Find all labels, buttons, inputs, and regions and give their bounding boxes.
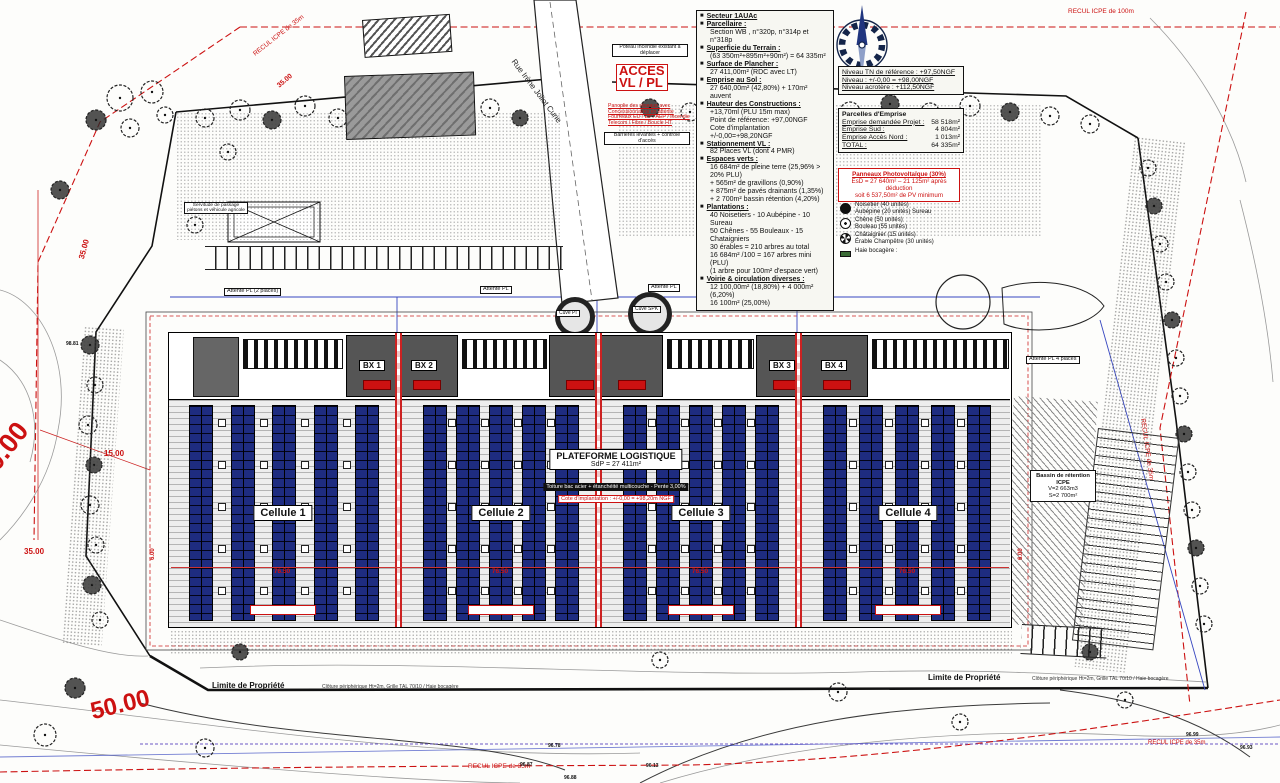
text-label: RECUL ICPE de 100m bbox=[1068, 8, 1134, 15]
smoke-vent bbox=[957, 461, 965, 469]
title-block-legend: ■Secteur 1AUAc■Parcellaire :Section WB ,… bbox=[696, 10, 834, 311]
legend-item-title: Emprise au Sol : bbox=[707, 77, 762, 85]
smoke-vent bbox=[957, 419, 965, 427]
smoke-vent bbox=[714, 545, 722, 553]
plant-name: Haie bocagère : bbox=[855, 248, 897, 255]
platform-title: PLATEFORME LOGISTIQUE bbox=[556, 451, 675, 461]
loading-docks bbox=[872, 339, 1009, 369]
hazel-tree-icon bbox=[840, 203, 851, 214]
plant-names: Châtaignier (15 unités)Érable Champêtre … bbox=[855, 232, 934, 245]
plant-names: Chêne (50 unités)Bouleau (55 unités) bbox=[855, 217, 907, 230]
smoke-vent bbox=[681, 587, 689, 595]
dimension-label: 76.50 bbox=[492, 568, 508, 575]
smoke-vent bbox=[747, 587, 755, 595]
existing-building bbox=[362, 14, 452, 58]
access-line2: VL / PL bbox=[619, 77, 665, 89]
tree-icon bbox=[107, 85, 133, 111]
smoke-vent bbox=[921, 419, 929, 427]
legend-item-header: ■Voirie & circulation diverses : bbox=[700, 276, 830, 284]
level-line: Niveau acrotère : +112,50NGF bbox=[842, 84, 960, 92]
plant-legend-row: Châtaignier (15 unités)Érable Champêtre … bbox=[840, 232, 980, 245]
legend-item: ■Superficie du Terrain :(63 350m²+895m²+… bbox=[700, 45, 830, 61]
square-bullet-icon: ■ bbox=[700, 61, 704, 69]
solar-panel-array bbox=[623, 405, 647, 621]
tree-icon bbox=[65, 678, 85, 698]
cell-label: Cellule 3 bbox=[671, 505, 730, 521]
square-bullet-icon: ■ bbox=[700, 141, 704, 149]
tree-icon bbox=[51, 181, 69, 199]
legend-item-line: 82 Places VL (dont 4 PMR) bbox=[700, 148, 830, 156]
hedge-icon bbox=[840, 251, 851, 257]
smoke-vent bbox=[343, 461, 351, 469]
tree-icon bbox=[1172, 388, 1188, 404]
pv-line: Panneaux Photovoltaïque (30%) bbox=[842, 171, 956, 178]
pv-note-box: Panneaux Photovoltaïque (30%) EsD = 27 6… bbox=[838, 168, 960, 202]
legend-item-title: Secteur 1AUAc bbox=[707, 13, 758, 21]
legend-item: ■Hauteur des Constructions :+13,70ml (PL… bbox=[700, 101, 830, 141]
basin-line: Bassin de rétention ICPE bbox=[1034, 473, 1092, 486]
dimension-label: 76.50 bbox=[274, 568, 290, 575]
emprise-title: Parcelles d'Emprise bbox=[842, 111, 960, 119]
basin-label-box: Bassin de rétention ICPE V=2 663m3 S=2 7… bbox=[1030, 470, 1096, 502]
smoke-vent bbox=[681, 419, 689, 427]
smoke-vent bbox=[648, 545, 656, 553]
legend-item-line: (1 arbre pour 100m² d'espace vert) bbox=[700, 268, 830, 276]
solar-panel-array bbox=[314, 405, 338, 621]
smoke-vent bbox=[957, 587, 965, 595]
legend-item-line: 40 Noisetiers - 10 Aubépine - 10 Sureau bbox=[700, 212, 830, 228]
emprise-row-value: 58 518m² bbox=[931, 119, 960, 127]
fire-wall-separator bbox=[395, 333, 402, 627]
cell-south-note-box bbox=[468, 605, 534, 615]
office-bx-label: BX 3 bbox=[769, 360, 795, 371]
smoke-vent bbox=[481, 461, 489, 469]
legend-item-header: ■Parcellaire : bbox=[700, 21, 830, 29]
dimension-label: 6.00 bbox=[150, 548, 156, 560]
text-label: RECUL ICPE de 35m bbox=[1148, 740, 1205, 746]
cell-label: Cellule 1 bbox=[253, 505, 312, 521]
legend-item-header: ■Superficie du Terrain : bbox=[700, 45, 830, 53]
smoke-vent bbox=[260, 461, 268, 469]
smoke-vent bbox=[481, 587, 489, 595]
existing-building bbox=[344, 71, 476, 139]
smoke-vent bbox=[481, 545, 489, 553]
emprise-row-label: Emprise demandée Projet : bbox=[842, 119, 924, 127]
spot-elevation: 96.87 bbox=[520, 763, 533, 768]
legend-item: ■Surface de Plancher :27 411,00m² (RDC a… bbox=[700, 61, 830, 77]
site-plan-canvas: BX 1BX 2BX 3BX 4Cellule 1Cellule 2Cellul… bbox=[0, 0, 1280, 783]
recul-icpe-35-line-south bbox=[0, 700, 1280, 772]
cell-south-note-box bbox=[250, 605, 316, 615]
cell-south-note-box bbox=[668, 605, 734, 615]
legend-item: ■Espaces verts :16 684m² de pleine terre… bbox=[700, 156, 830, 204]
networks-note-line: Telecom / Fibre / Boucle HT bbox=[608, 121, 690, 127]
legend-item: ■Stationnement VL :82 Places VL (dont 4 … bbox=[700, 141, 830, 157]
truck-wait-label: Attente PL bbox=[648, 284, 680, 292]
smoke-vent bbox=[448, 545, 456, 553]
tree-icon bbox=[952, 714, 968, 730]
loading-docks bbox=[462, 339, 547, 369]
contour-line bbox=[0, 290, 61, 540]
legend-item-line: 16 684m² de pleine terre (25,96% > 20% P… bbox=[700, 164, 830, 180]
smoke-vent bbox=[547, 419, 555, 427]
smoke-vent bbox=[885, 461, 893, 469]
legend-item-header: ■Surface de Plancher : bbox=[700, 61, 830, 69]
green-zone-outline bbox=[1002, 282, 1104, 330]
legend-item-title: Voirie & circulation diverses : bbox=[707, 276, 805, 284]
existing-parking-row bbox=[205, 246, 563, 270]
solar-panel-array bbox=[355, 405, 379, 621]
basin-line: S=2 700m² bbox=[1034, 493, 1092, 500]
smoke-vent bbox=[260, 545, 268, 553]
smoke-vent bbox=[343, 587, 351, 595]
smoke-vent bbox=[849, 419, 857, 427]
pv-line: soit 6 537,50m² de PV minimum bbox=[842, 192, 956, 199]
office-block bbox=[549, 335, 663, 397]
smoke-vent bbox=[218, 419, 226, 427]
smoke-vent bbox=[747, 419, 755, 427]
solar-panel-array bbox=[967, 405, 991, 621]
property-limit-label: Limite de Propriété bbox=[928, 674, 1000, 683]
smoke-vent bbox=[514, 587, 522, 595]
plant-legend-row: Chêne (50 unités)Bouleau (55 unités) bbox=[840, 217, 980, 230]
smoke-vent bbox=[481, 419, 489, 427]
spot-elevation: 96.88 bbox=[564, 776, 577, 781]
solar-panel-array bbox=[555, 405, 579, 621]
smoke-vent bbox=[260, 587, 268, 595]
access-label: ACCES VL / PL bbox=[616, 64, 668, 91]
plant-legend-row: Noisetier (40 unités)Aubépine (20 unités… bbox=[840, 202, 980, 215]
smoke-vent bbox=[849, 587, 857, 595]
solar-panel-array bbox=[823, 405, 847, 621]
legend-item-line: Cote d'implantation +/-0,00=+98,20NGF bbox=[700, 125, 830, 141]
smoke-vent bbox=[849, 461, 857, 469]
south-walkway-texture bbox=[170, 630, 1012, 654]
emprise-row-label: Emprise Sud : bbox=[842, 126, 885, 134]
property-limit-label: Limite de Propriété bbox=[212, 682, 284, 691]
dimension-label: 76.50 bbox=[692, 568, 708, 575]
smoke-vent bbox=[514, 461, 522, 469]
smoke-vent bbox=[885, 587, 893, 595]
smoke-vent bbox=[514, 419, 522, 427]
legend-item-line: 27 640,00m² (42,80%) + 170m² auvent bbox=[700, 85, 830, 101]
square-bullet-icon: ■ bbox=[700, 156, 704, 164]
plant-name: Érable Champêtre (30 unités) bbox=[855, 239, 934, 246]
tree-icon bbox=[1081, 115, 1099, 133]
emprise-row-value: 4 804m² bbox=[935, 126, 960, 134]
fire-wall-separator bbox=[595, 333, 602, 627]
legend-item: ■Secteur 1AUAc bbox=[700, 13, 830, 21]
smoke-vent bbox=[648, 419, 656, 427]
level-line: Niveau : +/-0,00 = +98,00NGF bbox=[842, 77, 960, 85]
smoke-vent bbox=[301, 545, 309, 553]
square-bullet-icon: ■ bbox=[700, 101, 704, 109]
legend-item-line: (63 350m²+895m²+90m²) = 64 335m² bbox=[700, 53, 830, 61]
office-bx-label: BX 1 bbox=[359, 360, 385, 371]
level-line: Niveau TN de référence : +97,50NGF bbox=[842, 69, 960, 77]
tree-icon bbox=[652, 652, 668, 668]
truck-wait-label: Attente PL bbox=[480, 286, 512, 294]
smoke-vent bbox=[301, 461, 309, 469]
spot-elevation: 96.13 bbox=[646, 764, 659, 769]
legend-item-header: ■Espaces verts : bbox=[700, 156, 830, 164]
smoke-vent bbox=[218, 461, 226, 469]
smoke-vent bbox=[648, 503, 656, 511]
contour-line-dark bbox=[140, 703, 565, 770]
legend-item-line: 27 411,00m² (RDC avec LT) bbox=[700, 69, 830, 77]
smoke-vent bbox=[218, 545, 226, 553]
office-red-tag bbox=[618, 380, 646, 390]
smoke-vent bbox=[714, 419, 722, 427]
easement-note: Servitude de passage piétons et véhicule… bbox=[184, 202, 248, 214]
tree-icon bbox=[1188, 540, 1204, 556]
legend-item-line: 30 érables = 210 arbres au total bbox=[700, 244, 830, 252]
smoke-vent bbox=[747, 461, 755, 469]
office-block: BX 3BX 4 bbox=[756, 335, 868, 397]
emprise-row: TOTAL :64 335m² bbox=[842, 142, 960, 150]
pv-line: EsD = 27 640m² – 21 125m² après déductio… bbox=[842, 178, 956, 192]
truck-wait-label: Attente PL 4 places bbox=[1026, 356, 1080, 364]
tree-icon bbox=[1196, 616, 1212, 632]
fire-wall-separator bbox=[795, 333, 802, 627]
dimension-label: 76.50 bbox=[899, 568, 915, 575]
truck-wait-label: Attente PL (2 places) bbox=[224, 288, 281, 296]
legend-items: ■Secteur 1AUAc■Parcellaire :Section WB ,… bbox=[700, 13, 830, 308]
smoke-vent bbox=[714, 587, 722, 595]
square-bullet-icon: ■ bbox=[700, 276, 704, 284]
smoke-vent bbox=[849, 503, 857, 511]
tank-label: Cuve SPK bbox=[632, 306, 661, 313]
solar-panel-array bbox=[423, 405, 447, 621]
legend-item: ■Voirie & circulation diverses :12 100,0… bbox=[700, 276, 830, 308]
contour-line-blue bbox=[0, 737, 1280, 757]
square-bullet-icon: ■ bbox=[700, 204, 704, 212]
office-bx-label: BX 4 bbox=[821, 360, 847, 371]
legend-item-line: + 875m² de pavés drainants (1,35%) bbox=[700, 188, 830, 196]
plant-name: Aubépine (20 unités) Sureau bbox=[855, 209, 931, 216]
legend-item-line: + 565m² de gravillons (0,90%) bbox=[700, 180, 830, 188]
legend-item-line: 16 684m² /100 = 167 arbres mini (PLU) bbox=[700, 252, 830, 268]
legend-item: ■Parcellaire :Section WB , n°320p, n°314… bbox=[700, 21, 830, 45]
smoke-vent bbox=[448, 461, 456, 469]
office-red-tag bbox=[566, 380, 594, 390]
tree-icon bbox=[34, 724, 56, 746]
dimension-label: 15.00 bbox=[104, 450, 124, 459]
technical-block bbox=[193, 337, 239, 397]
cell-south-note-box bbox=[875, 605, 941, 615]
parking-stalls-southeast bbox=[1020, 624, 1107, 658]
legend-item-title: Parcellaire : bbox=[707, 21, 747, 29]
platform-subtitle: SdP = 27 411m² bbox=[556, 461, 675, 468]
legend-item: ■Plantations :40 Noisetiers - 10 Aubépin… bbox=[700, 204, 830, 276]
emprise-row: Emprise Sud :4 804m² bbox=[842, 126, 960, 134]
roof-note: Toiture bac acier + étanchéité multicouc… bbox=[543, 483, 688, 491]
spot-elevation: 96.93 bbox=[1240, 746, 1253, 751]
contour-line bbox=[1240, 200, 1273, 382]
emprise-rows: Emprise demandée Projet :58 518m²Emprise… bbox=[842, 119, 960, 150]
levels-box: Niveau TN de référence : +97,50NGF Nivea… bbox=[838, 66, 964, 95]
emprise-row-value: 1 013m² bbox=[935, 134, 960, 142]
smoke-vent bbox=[849, 545, 857, 553]
legend-item-line: 50 Chênes - 55 Bouleaux - 15 Chataignier… bbox=[700, 228, 830, 244]
parcel-boundary-south bbox=[150, 656, 1208, 690]
oak-tree-icon bbox=[840, 218, 851, 229]
office-red-tag bbox=[363, 380, 391, 390]
legend-item-line: 16 100m² (25,00%) bbox=[700, 300, 830, 308]
legend-item-title: Hauteur des Constructions : bbox=[707, 101, 801, 109]
pond-outline bbox=[936, 275, 990, 329]
cote-note: Cote d'implantation : +/-0,00 = +98,20m … bbox=[558, 495, 674, 503]
basin-line: V=2 663m3 bbox=[1034, 486, 1092, 493]
platform-title-box: PLATEFORME LOGISTIQUESdP = 27 411m² bbox=[549, 449, 682, 470]
smoke-vent bbox=[514, 545, 522, 553]
smoke-vent bbox=[218, 503, 226, 511]
hydrant-note: Poteau Incendie existant à déplacer bbox=[612, 44, 688, 57]
legend-item-line: 12 100,00m² (18,80%) + 4 000m² (6,20%) bbox=[700, 284, 830, 300]
roof-red-line bbox=[171, 567, 1009, 568]
emprise-row: Emprise demandée Projet :58 518m² bbox=[842, 119, 960, 127]
emprise-row-value: 64 335m² bbox=[931, 142, 960, 150]
solar-panel-array bbox=[231, 405, 255, 621]
smoke-vent bbox=[343, 545, 351, 553]
smoke-vent bbox=[448, 587, 456, 595]
tree-icon bbox=[121, 119, 139, 137]
legend-item-line: + 2 700m² bassin rétention (4,20%) bbox=[700, 196, 830, 204]
smoke-vent bbox=[301, 587, 309, 595]
plant-names: Noisetier (40 unités)Aubépine (20 unités… bbox=[855, 202, 931, 215]
contour-line-dark bbox=[1060, 690, 1250, 757]
smoke-vent bbox=[547, 587, 555, 595]
fence-note: Clôture périphérique Ht=2m, Grille TAL 7… bbox=[1032, 677, 1169, 682]
plant-name: Chêne (50 unités) bbox=[855, 217, 907, 224]
fence-note: Clôture périphérique Ht=2m, Grille TAL 7… bbox=[322, 685, 459, 690]
smoke-vent bbox=[921, 545, 929, 553]
legend-item-title: Stationnement VL : bbox=[707, 141, 771, 149]
smoke-vent bbox=[547, 503, 555, 511]
smoke-vent bbox=[301, 419, 309, 427]
smoke-vent bbox=[747, 545, 755, 553]
square-bullet-icon: ■ bbox=[700, 13, 704, 21]
legend-item-line: Point de référence: +97,00NGF bbox=[700, 117, 830, 125]
solar-panel-array bbox=[755, 405, 779, 621]
legend-item-header: ■Emprise au Sol : bbox=[700, 77, 830, 85]
spot-elevation: 98.81 bbox=[66, 342, 79, 347]
smoke-vent bbox=[921, 587, 929, 595]
plant-name: Châtaignier (15 unités) bbox=[855, 232, 934, 239]
square-bullet-icon: ■ bbox=[700, 45, 704, 53]
sprinkler-tank bbox=[628, 292, 672, 336]
legend-item-title: Surface de Plancher : bbox=[707, 61, 779, 69]
plant-name: Noisetier (40 unités) bbox=[855, 202, 931, 209]
legend-item-header: ■Hauteur des Constructions : bbox=[700, 101, 830, 109]
legend-item-title: Plantations : bbox=[707, 204, 749, 212]
smoke-vent bbox=[957, 545, 965, 553]
dimension-label: 6.00 bbox=[1018, 548, 1024, 560]
barrier-note: Barrières levantes + contrôle d'accès bbox=[604, 132, 690, 145]
solar-panel-array bbox=[189, 405, 213, 621]
smoke-vent bbox=[343, 419, 351, 427]
smoke-vent bbox=[218, 587, 226, 595]
contour-line bbox=[0, 745, 520, 783]
emprise-row: Emprise Accès Nord :1 013m² bbox=[842, 134, 960, 142]
smoke-vent bbox=[448, 419, 456, 427]
loading-docks bbox=[243, 339, 343, 369]
emprise-table: Parcelles d'Emprise Emprise demandée Pro… bbox=[838, 108, 964, 153]
smoke-vent bbox=[648, 587, 656, 595]
cell-label: Cellule 2 bbox=[471, 505, 530, 521]
legend-item-title: Espaces verts : bbox=[707, 156, 758, 164]
recul-icpe-35-line-east bbox=[1160, 12, 1246, 705]
spot-elevation: 96.78 bbox=[548, 744, 561, 749]
office-red-tag bbox=[413, 380, 441, 390]
square-bullet-icon: ■ bbox=[700, 77, 704, 85]
tree-icon bbox=[1041, 107, 1059, 125]
plant-legend: Noisetier (40 unités)Aubépine (20 unités… bbox=[840, 202, 980, 259]
legend-item-header: ■Secteur 1AUAc bbox=[700, 13, 830, 21]
tank-label: Cuve PI bbox=[556, 310, 580, 317]
legend-item: ■Emprise au Sol :27 640,00m² (42,80%) + … bbox=[700, 77, 830, 101]
legend-item-header: ■Stationnement VL : bbox=[700, 141, 830, 149]
plant-name: Bouleau (55 unités) bbox=[855, 224, 907, 231]
office-red-tag bbox=[823, 380, 851, 390]
dimension-label: 35.00 bbox=[24, 548, 44, 557]
smoke-vent bbox=[547, 545, 555, 553]
tree-icon bbox=[1164, 312, 1180, 328]
networks-note: Panoplie des réseaux avecConcessionnaire… bbox=[608, 104, 690, 126]
logistics-building: BX 1BX 2BX 3BX 4Cellule 1Cellule 2Cellul… bbox=[168, 332, 1012, 628]
legend-item-line: +13,70ml (PLU 15m max) bbox=[700, 109, 830, 117]
square-bullet-icon: ■ bbox=[700, 21, 704, 29]
tree-icon bbox=[157, 107, 173, 123]
plant-names: Haie bocagère : bbox=[855, 248, 897, 257]
smoke-vent bbox=[681, 545, 689, 553]
tree-icon bbox=[196, 739, 214, 757]
smoke-vent bbox=[885, 545, 893, 553]
emprise-row-label: TOTAL : bbox=[842, 142, 867, 150]
legend-item-title: Superficie du Terrain : bbox=[707, 45, 781, 53]
office-bx-label: BX 2 bbox=[411, 360, 437, 371]
smoke-vent bbox=[714, 461, 722, 469]
office-block: BX 1BX 2 bbox=[346, 335, 458, 397]
tree-icon bbox=[829, 683, 847, 701]
cell-label: Cellule 4 bbox=[878, 505, 937, 521]
legend-item-line: Section WB , n°320p, n°314p et n°318p bbox=[700, 29, 830, 45]
spot-elevation: 96.99 bbox=[1186, 733, 1199, 738]
smoke-vent bbox=[885, 419, 893, 427]
smoke-vent bbox=[957, 503, 965, 511]
smoke-vent bbox=[921, 461, 929, 469]
tree-icon bbox=[86, 110, 106, 130]
smoke-vent bbox=[343, 503, 351, 511]
smoke-vent bbox=[260, 419, 268, 427]
emprise-row-label: Emprise Accès Nord : bbox=[842, 134, 907, 142]
plant-legend-row: Haie bocagère : bbox=[840, 248, 980, 257]
smoke-vent bbox=[448, 503, 456, 511]
smoke-vent bbox=[747, 503, 755, 511]
loading-docks bbox=[667, 339, 754, 369]
chestnut-tree-icon bbox=[840, 233, 851, 244]
legend-item-header: ■Plantations : bbox=[700, 204, 830, 212]
